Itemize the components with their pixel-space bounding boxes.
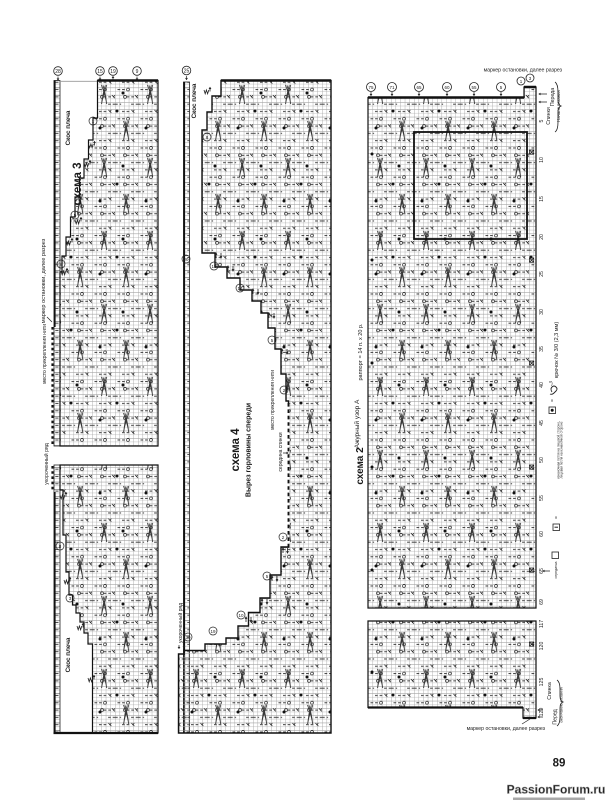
svg-text:45: 45 [539, 420, 545, 426]
svg-text:14: 14 [237, 286, 243, 291]
svg-text:117: 117 [539, 620, 545, 628]
svg-text:129: 129 [539, 708, 545, 717]
svg-text:=: = [554, 516, 560, 519]
svg-text:маркер остановки, далее разрез: маркер остановки, далее разрез [41, 238, 47, 323]
svg-text:серединка: серединка [554, 561, 558, 578]
svg-text:схема 3: схема 3 [72, 163, 84, 206]
svg-text:середина спинки: середина спинки [278, 432, 284, 471]
svg-text:40: 40 [539, 382, 545, 388]
svg-text:5: 5 [539, 119, 545, 122]
svg-text:69: 69 [539, 599, 545, 605]
svg-text:120: 120 [539, 642, 545, 651]
svg-text:место прикрепления нити: место прикрепления нити [42, 324, 48, 384]
svg-text:20: 20 [183, 257, 189, 262]
svg-text:маркер остановки, далее разрез: маркер остановки, далее разрез [484, 68, 563, 74]
svg-text:Скос плеча: Скос плеча [191, 83, 198, 118]
svg-text:10: 10 [238, 613, 244, 618]
svg-text:75: 75 [368, 85, 374, 90]
svg-text:71: 71 [389, 85, 395, 90]
svg-text:Скос плеча: Скос плеча [65, 637, 72, 672]
svg-text:крючок № 3/0 (2,3 мм): крючок № 3/0 (2,3 мм) [554, 322, 560, 378]
svg-text:Вырез горловины спереди: Вырез горловины спереди [246, 403, 253, 497]
svg-text:раппорт = 14 п. x 20 р.: раппорт = 14 п. x 20 р. [358, 323, 364, 381]
svg-text:окончание вязания: окончание вязания [559, 687, 564, 722]
svg-text:10: 10 [539, 157, 545, 163]
svg-text:Ажурный узор А: Ажурный узор А [353, 399, 361, 448]
svg-text:19: 19 [210, 629, 216, 634]
svg-text:89: 89 [553, 758, 566, 770]
svg-text:65: 65 [416, 85, 422, 90]
svg-text:125: 125 [539, 678, 545, 687]
svg-text:маркер остановки, далее разрез: маркер остановки, далее разрез [467, 726, 546, 732]
svg-text:50: 50 [539, 457, 545, 463]
svg-text:схема 4: схема 4 [230, 428, 242, 472]
svg-text:Скос плеча: Скос плеча [65, 110, 72, 145]
svg-text:15: 15 [539, 196, 545, 202]
svg-text:15: 15 [97, 69, 103, 75]
svg-text:лицевая петля на изнаночной ст: лицевая петля на изнаночной стороне [560, 421, 564, 478]
svg-text:=: = [550, 399, 556, 402]
svg-text:55: 55 [539, 495, 545, 501]
svg-text:19: 19 [211, 264, 217, 269]
svg-text:60: 60 [539, 531, 545, 537]
svg-text:20: 20 [539, 234, 545, 240]
svg-text:30: 30 [539, 309, 545, 315]
svg-text:PassionForum.ru: PassionForum.ru [507, 783, 606, 797]
svg-text:25: 25 [539, 271, 545, 277]
svg-text:30: 30 [185, 635, 191, 640]
svg-text:место прикрепления нити: место прикрепления нити [270, 370, 276, 430]
svg-text:схема 2: схема 2 [355, 447, 366, 485]
svg-text:укороченный ряд: укороченный ряд [177, 603, 184, 643]
svg-text:35: 35 [539, 346, 545, 352]
svg-text:9: 9 [136, 69, 139, 75]
svg-text:55: 55 [471, 85, 477, 90]
svg-text:28: 28 [55, 69, 61, 75]
svg-text:укороченный ряд: укороченный ряд [43, 443, 50, 485]
svg-text:Спинки: Спинки [546, 107, 552, 125]
svg-text:Спинка: Спинка [547, 682, 553, 700]
svg-text:60: 60 [444, 85, 450, 90]
svg-text:*): *) [549, 381, 553, 387]
svg-text:25: 25 [184, 69, 190, 75]
svg-text:19: 19 [110, 69, 116, 75]
